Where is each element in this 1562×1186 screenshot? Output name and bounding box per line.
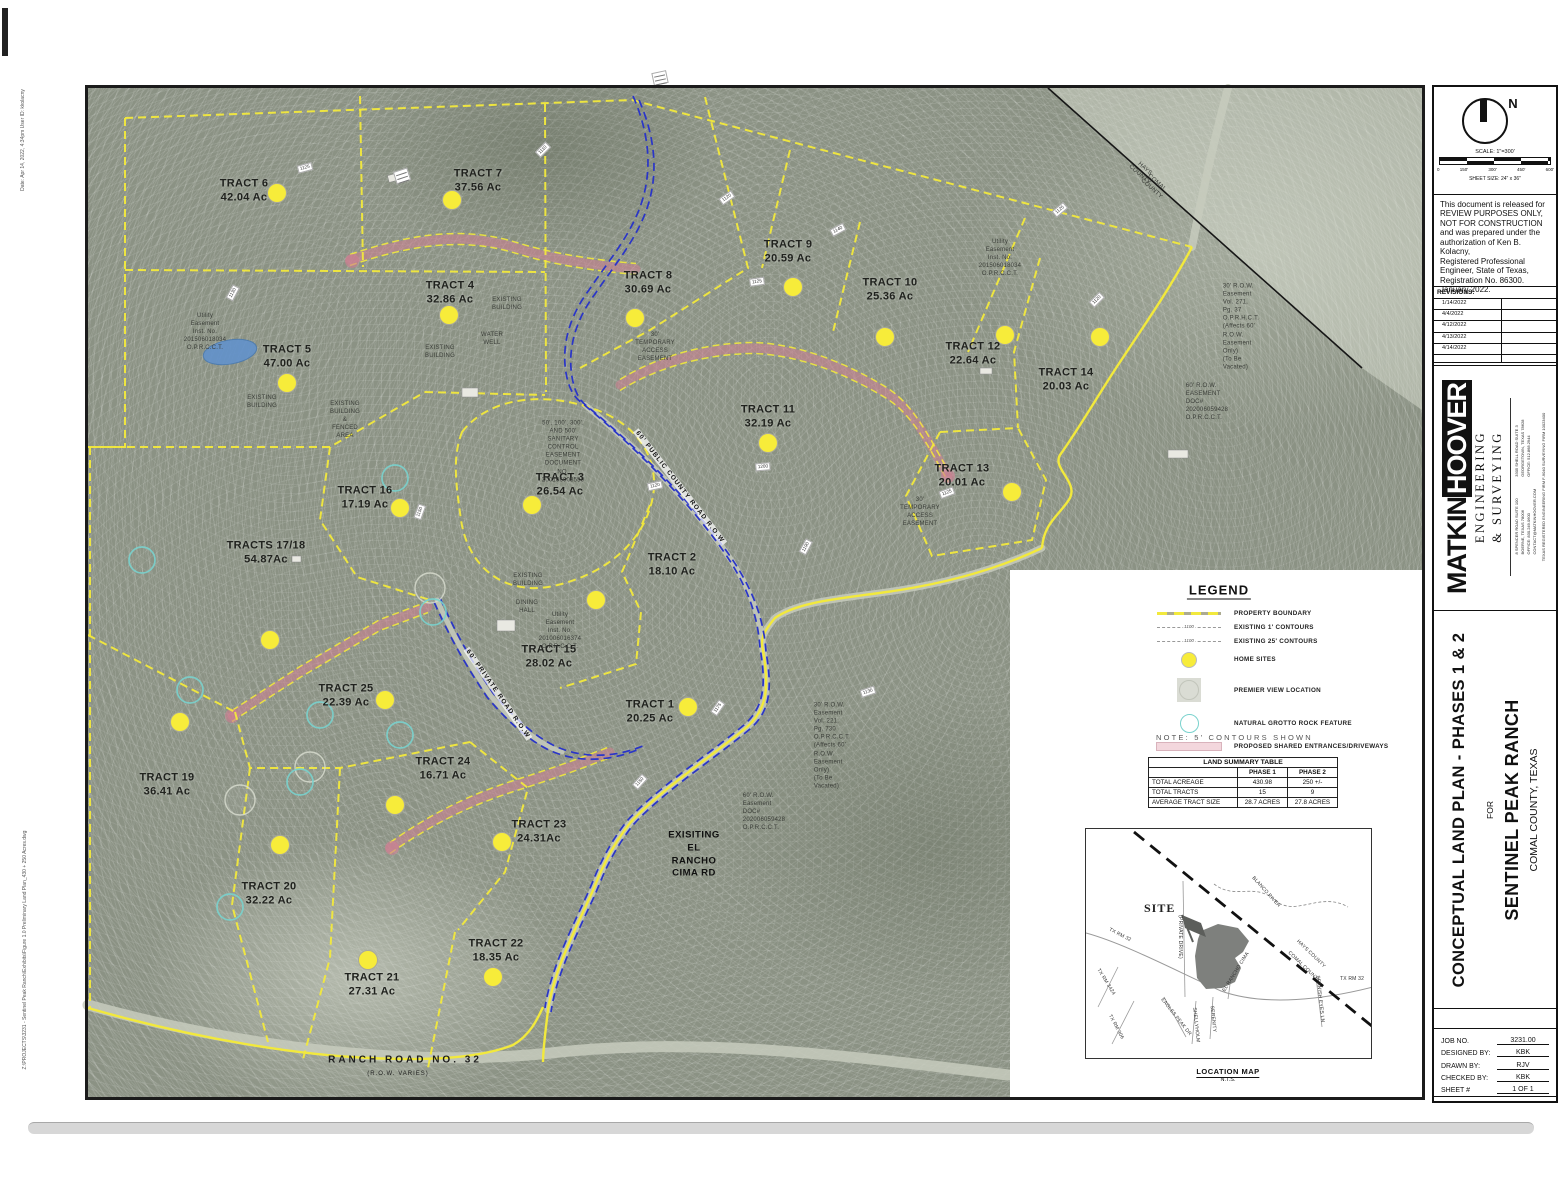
tract-label: TRACT 2032.22 Ac [242, 880, 297, 909]
grotto-circle [129, 547, 155, 573]
premier-view-circle [225, 785, 255, 815]
summary-row: TOTAL TRACTS159 [1149, 788, 1338, 798]
tract-name: TRACT 25 [319, 682, 374, 696]
tract-acreage: 30.69 Ac [624, 283, 673, 297]
job-value: 3231.00 [1497, 1037, 1549, 1045]
summary-value: 27.8 ACRES [1287, 798, 1337, 808]
tract-divider [580, 97, 748, 368]
tract-name: TRACT 13 [935, 462, 990, 476]
tract-name: TRACT 6 [220, 177, 269, 191]
annotation: 60' R.O.W. Easement DOC# 202006059428 O.… [743, 792, 785, 832]
site-label: SITE [1144, 901, 1175, 916]
tract-name: TRACT 24 [416, 755, 471, 769]
premier-swatch-icon [1150, 678, 1228, 702]
tract-name: TRACT 19 [140, 771, 195, 785]
tract-acreage: 18.35 Ac [469, 951, 524, 965]
home-site-dot [268, 184, 287, 203]
contour1-swatch-icon: 1100 [1150, 627, 1228, 628]
home-site-dot [278, 374, 297, 393]
summary-row: TOTAL ACREAGE430.98250 +/- [1149, 778, 1338, 788]
building [462, 388, 478, 397]
revisions-rows: 1/14/20224/4/20224/12/20224/13/20224/14/… [1434, 299, 1556, 366]
contour-elevation-tag: 1100 [1183, 638, 1195, 643]
driveway-blob [345, 254, 359, 268]
tract-acreage: 32.86 Ac [426, 293, 475, 307]
tract-divider [88, 635, 235, 712]
swatch [1180, 714, 1199, 733]
logo-surveying: & SURVEYING [1490, 431, 1505, 543]
job-value: 1 OF 1 [1497, 1086, 1549, 1094]
contour25-swatch-icon: 1100 [1150, 641, 1228, 642]
job-row: DESIGNED BY:KBK [1441, 1045, 1549, 1057]
home-swatch-icon [1150, 652, 1228, 668]
job-label: CHECKED BY: [1441, 1075, 1488, 1082]
summary-value: 15 [1237, 788, 1287, 798]
north-scale-section: N SCALE: 1"=300' 0150'300'450'600' SHEET… [1434, 87, 1556, 195]
home-site-dot [261, 631, 280, 650]
tract-acreage: 16.71 Ac [416, 769, 471, 783]
review-note: This document is released for REVIEW PUR… [1434, 195, 1556, 299]
tract-divider [125, 270, 545, 272]
building [497, 620, 515, 631]
tract-acreage: 20.25 Ac [626, 712, 675, 726]
tract-label: TRACT 1222.64 Ac [946, 340, 1001, 369]
job-label: SHEET # [1441, 1087, 1470, 1094]
date-stamp: Date: Apr 14, 2022, 4:34pm User ID: kkol… [20, 89, 26, 191]
tract-acreage: 32.22 Ac [242, 894, 297, 908]
grotto-circle [217, 894, 243, 920]
company-logo: MATKINHOOVER [1444, 379, 1471, 593]
annotation: RANCH ROAD NO. 32 [328, 1053, 482, 1067]
boundary-top [125, 100, 1192, 247]
tract-label: TRACT 1420.03 Ac [1039, 366, 1094, 395]
revision-date: 1/14/2022 [1442, 300, 1466, 306]
job-row: CHECKED BY:KBK [1441, 1070, 1549, 1082]
annotation: EXISTING BUILDING [492, 296, 522, 312]
sheet-title-for: FOR [1485, 801, 1495, 819]
legend-label: PROPOSED SHARED ENTRANCES/DRIVEWAYS [1234, 743, 1388, 750]
tract-name: TRACT 8 [624, 269, 673, 283]
summary-label: TOTAL ACREAGE [1149, 778, 1238, 788]
logo-firm-line: TEXAS REGISTERED ENGINEERING FIRM F-9040… [1541, 412, 1546, 560]
logo-addresses: 8 SPENCER ROAD SUITE 100 BOERNE, TEXAS 7… [1514, 419, 1538, 554]
legend-label: EXISTING 1' CONTOURS [1234, 624, 1314, 631]
home-site-dot [271, 836, 290, 855]
tract-label: TRACT 2218.35 Ac [469, 937, 524, 966]
tract-name: TRACT 21 [345, 971, 400, 985]
tract-acreage: 18.10 Ac [648, 565, 697, 579]
legend-title: LEGEND [1187, 583, 1251, 600]
grotto-swatch-icon [1150, 714, 1228, 733]
scale-tick: 600' [1546, 167, 1554, 172]
county-line [1134, 832, 1372, 1027]
job-value: KBK [1497, 1074, 1549, 1082]
home-site-dot [391, 499, 410, 518]
sheet-size: SHEET SIZE: 24" x 36" [1469, 176, 1521, 182]
swatch [1157, 612, 1221, 615]
boundary-left [88, 118, 125, 447]
spacer-strip [1434, 1009, 1556, 1029]
legend-note: NOTE: 5' CONTOURS SHOWN [1156, 733, 1313, 742]
tract-divider [360, 96, 363, 267]
grotto-circle [387, 722, 413, 748]
tract-label: TRACT 830.69 Ac [624, 269, 673, 298]
tract-name: TRACT 20 [242, 880, 297, 894]
file-path-stamp: Z:\PROJECTS\3231 - Sentinel Peak Ranch\E… [22, 831, 28, 1070]
tract-label: TRACT 1132.19 Ac [741, 403, 795, 432]
scale-tick: 300' [1488, 167, 1496, 172]
legend-row: HOME SITES [1150, 649, 1408, 670]
summary-value: 430.98 [1237, 778, 1287, 788]
annotation: EXISITING EL RANCHO CIMA RD [668, 829, 719, 880]
summary-value: 28.7 ACRES [1237, 798, 1287, 808]
tract-name: TRACT 9 [764, 238, 813, 252]
tract-label: TRACTS 17/1854.87Ac [227, 539, 306, 568]
plan-sheet: Date: Apr 14, 2022, 4:34pm User ID: kkol… [0, 0, 1562, 1186]
annotation: EXISTING BUILDING [247, 394, 277, 410]
tract-acreage: 54.87Ac [227, 553, 306, 567]
location-map-label: TX RM 32 [1340, 976, 1364, 982]
tract-acreage: 37.56 Ac [454, 181, 503, 195]
tract-label: TRACT 1025.36 Ac [863, 276, 918, 305]
legend-label: NATURAL GROTTO ROCK FEATURE [1234, 720, 1352, 727]
driveway-north [350, 239, 636, 269]
summary-col-phase2: PHASE 2 [1287, 768, 1337, 778]
tract-label: TRACT 2522.39 Ac [319, 682, 374, 711]
annotation: 30' R.O.W. Easement Vol. 271, Pg. 37 O.P… [1223, 282, 1259, 371]
contour-elevation-tag: 1100 [1183, 624, 1195, 629]
logo-divider [1510, 398, 1511, 576]
annotation: WATER WELL [481, 331, 503, 347]
tract-divider [425, 392, 545, 395]
tract-acreage: 25.36 Ac [863, 290, 918, 304]
north-letter: N [1508, 96, 1517, 111]
annotation: (R.O.W. VARIES) [367, 1070, 429, 1078]
annotation: 30' R.O.W. Easement Vol. 221, Pg. 730 O.… [814, 701, 850, 790]
annotation: 60' R.O.W. EASEMENT DOC# 202006059428 O.… [1186, 382, 1228, 422]
revision-date: 4/13/2022 [1442, 334, 1466, 340]
job-table: JOB NO.3231.00DESIGNED BY:KBKDRAWN BY:RJ… [1434, 1029, 1556, 1098]
tract-acreage: 32.19 Ac [741, 417, 795, 431]
el-rancho-band [548, 548, 1042, 1010]
home-site-dot [587, 591, 606, 610]
project-name: SENTINEL PEAK RANCH [1502, 699, 1523, 920]
tract-label: TRACT 120.25 Ac [626, 698, 675, 727]
revision-row: 4/12/2022 [1434, 321, 1556, 332]
review-section: This document is released for REVIEW PUR… [1434, 195, 1556, 287]
tract-acreage: 27.31 Ac [345, 985, 400, 999]
tract-name: TRACT 11 [741, 403, 795, 417]
swatch [1177, 678, 1201, 702]
home-site-dots [171, 184, 1110, 987]
revision-date: 4/4/2022 [1442, 311, 1463, 317]
building [1168, 450, 1188, 458]
tract-name: TRACT 12 [946, 340, 1001, 354]
legend-label: EXISTING 25' CONTOURS [1234, 638, 1318, 645]
tract-label: TRACT 1936.41 Ac [140, 771, 195, 800]
tract-name: TRACT 23 [512, 818, 567, 832]
home-site-dot [1003, 483, 1022, 502]
tract-acreage: 22.39 Ac [319, 696, 374, 710]
logo-section: MATKINHOOVER ENGINEERING & SURVEYING 8 S… [1434, 363, 1556, 611]
tract-divider [320, 447, 430, 600]
revision-row: 4/4/2022 [1434, 310, 1556, 321]
scale-bar [1439, 157, 1551, 165]
legend-row: PROPERTY BOUNDARY [1150, 606, 1408, 620]
job-value: KBK [1497, 1049, 1549, 1057]
legend-row: PREMIER VIEW LOCATION [1150, 670, 1408, 710]
job-value: RJV [1497, 1062, 1549, 1070]
annotation: 50', 100', 300', AND 500' SANITARY CONTR… [542, 420, 584, 485]
annotation: DINING HALL [516, 599, 538, 615]
annotation: EXISTING BUILDING [425, 344, 455, 360]
annotation: 30' TEMPORARY ACCESS EASEMENT [900, 496, 940, 528]
home-site-dot [626, 309, 645, 328]
swatch [1181, 652, 1197, 668]
revisions-section: REVISIONS: 1/14/20224/4/20224/12/20224/1… [1434, 287, 1556, 363]
elevation-tag: 1200 [755, 462, 771, 472]
boundary-solid-ne [1042, 247, 1192, 548]
summary-value: 250 +/- [1287, 778, 1337, 788]
summary-row: AVERAGE TRACT SIZE28.7 ACRES27.8 ACRES [1149, 798, 1338, 808]
scale-tick: 150' [1460, 167, 1468, 172]
grotto-circles [129, 465, 446, 920]
sheet-title: CONCEPTUAL LAND PLAN - PHASES 1 & 2 [1450, 632, 1469, 987]
tract-label: TRACT 642.04 Ac [220, 177, 269, 206]
revision-row: 4/14/2022 [1434, 344, 1556, 355]
scale-ticks: 0150'300'450'600' [1437, 167, 1554, 172]
job-row: SHEET #1 OF 1 [1441, 1082, 1549, 1094]
tract-divider [833, 222, 860, 332]
tract-name: TRACT 14 [1039, 366, 1094, 380]
north-arrow-bar [1480, 100, 1487, 122]
titleblock: N SCALE: 1"=300' 0150'300'450'600' SHEET… [1432, 85, 1558, 1103]
tract-name: TRACT 5 [263, 343, 312, 357]
job-label: DRAWN BY: [1441, 1063, 1480, 1070]
tract-acreage: 17.19 Ac [338, 498, 393, 512]
tract-acreage: 20.01 Ac [935, 476, 990, 490]
home-site-dot [359, 951, 378, 970]
scale-tick: 450' [1517, 167, 1525, 172]
job-row: JOB NO.3231.00 [1441, 1033, 1549, 1045]
location-map-caption: LOCATION MAP [1196, 1067, 1259, 1078]
legend-label: HOME SITES [1234, 656, 1276, 663]
grotto-circle [177, 677, 203, 703]
tract-name: TRACTS 17/18 [227, 539, 306, 553]
boundary-solid-east [543, 548, 1042, 1062]
legend-label: PREMIER VIEW LOCATION [1234, 687, 1321, 694]
tract-acreage: 22.64 Ac [946, 354, 1001, 368]
logo-engineering: ENGINEERING [1473, 430, 1488, 542]
tract-acreage: 28.02 Ac [522, 657, 577, 671]
home-site-dot [1091, 328, 1110, 347]
location-map: SITE TX RM 32TX RM 3424TX RM 306(PRIVATE… [1085, 828, 1372, 1059]
tract-acreage: 42.04 Ac [220, 191, 269, 205]
land-summary-table: LAND SUMMARY TABLE PHASE 1 PHASE 2 TOTAL… [1148, 757, 1338, 808]
home-site-dot [171, 713, 190, 732]
job-label: DESIGNED BY: [1441, 1050, 1490, 1057]
logo-matkin: MATKIN [1442, 497, 1472, 594]
tract-label: TRACT 737.56 Ac [454, 167, 503, 196]
tract-acreage: 26.54 Ac [536, 485, 585, 499]
swatch-dash [1157, 612, 1221, 615]
building [980, 368, 992, 374]
tract-divider [302, 768, 340, 1063]
annotation: Utility Easement Inst. No. 201506018034 … [979, 238, 1021, 278]
annotation: Utility Easement Inst. No. 201006016374 … [539, 611, 581, 651]
sheet-title-section: CONCEPTUAL LAND PLAN - PHASES 1 & 2 FOR … [1434, 611, 1556, 1009]
swatch: 1100 [1157, 627, 1221, 628]
tract-acreage: 20.59 Ac [764, 252, 813, 266]
tract-label: TRACT 2127.31 Ac [345, 971, 400, 1000]
tract-name: TRACT 10 [863, 276, 918, 290]
tract-label: TRACT 432.86 Ac [426, 279, 475, 308]
revisions-label: REVISIONS: [1434, 287, 1556, 299]
project-location: COMAL COUNTY, TEXAS [1528, 748, 1540, 871]
swatch [1156, 742, 1222, 751]
annotation: Utility Easement Inst. No. 201506018034 … [184, 312, 226, 352]
driveway-blob [385, 841, 399, 855]
scale-label: SCALE: 1"=300' [1475, 149, 1515, 155]
tract-label: TRACT 1617.19 Ac [338, 484, 393, 513]
boundary-swatch-icon [1150, 612, 1228, 615]
location-map-scale: N.T.S. [1221, 1077, 1236, 1083]
annotation: EXISTING BUILDING [513, 572, 543, 588]
tract-label: TRACT 547.00 Ac [263, 343, 312, 372]
home-site-dot [493, 833, 512, 852]
scale-tick: 0 [1437, 167, 1440, 172]
tract-acreage: 36.41 Ac [140, 785, 195, 799]
legend-row: 1100EXISTING 25' CONTOURS [1150, 634, 1408, 649]
summary-label: TOTAL TRACTS [1149, 788, 1238, 798]
annotation: EXISTING BUILDING & FENCED AREA [330, 400, 360, 440]
home-site-dot [376, 691, 395, 710]
home-site-dot [759, 434, 778, 453]
swatch-circle [1179, 680, 1199, 700]
tract-acreage: 20.03 Ac [1039, 380, 1094, 394]
summary-label: AVERAGE TRACT SIZE [1149, 798, 1238, 808]
revision-row: 1/14/2022 [1434, 299, 1556, 310]
location-map-svg [1086, 829, 1372, 1059]
summary-col-blank [1149, 768, 1238, 778]
logo-address-boerne: 8 SPENCER ROAD SUITE 100 BOERNE, TEXAS 7… [1514, 488, 1538, 554]
job-section: JOB NO.3231.00DESIGNED BY:KBKDRAWN BY:RJ… [1434, 1029, 1556, 1097]
corner-mark [2, 8, 8, 56]
revision-date: 4/14/2022 [1442, 345, 1466, 351]
home-site-dot [784, 278, 803, 297]
home-site-dot [484, 968, 503, 987]
tract-label: TRACT 2416.71 Ac [416, 755, 471, 784]
tract-divider [428, 932, 455, 1068]
tract-label: TRACT 218.10 Ac [648, 551, 697, 580]
summary-col-phase1: PHASE 1 [1237, 768, 1287, 778]
tract-acreage: 24.31Ac [512, 832, 567, 846]
home-site-dot [440, 306, 459, 325]
summary-title: LAND SUMMARY TABLE [1149, 758, 1338, 768]
swatch: 1100 [1157, 641, 1221, 642]
private-drive-road [1183, 881, 1185, 997]
logo-hoover: HOOVER [1442, 379, 1472, 496]
tract-divider [1014, 258, 1040, 428]
summary-value: 9 [1287, 788, 1337, 798]
home-site-dot [386, 796, 405, 815]
revisions-divider [1501, 299, 1502, 362]
home-site-dot [876, 328, 895, 347]
home-site-dot [679, 698, 698, 717]
job-row: DRAWN BY:RJV [1441, 1057, 1549, 1069]
county-road-se-band [585, 405, 763, 650]
legend-label: PROPERTY BOUNDARY [1234, 610, 1312, 617]
location-map-label: (PRIVATE DRIVE) [1177, 915, 1183, 959]
revision-date: 4/12/2022 [1442, 322, 1466, 328]
job-label: JOB NO. [1441, 1038, 1469, 1045]
legend-row: 1100EXISTING 1' CONTOURS [1150, 620, 1408, 634]
tract-name: TRACT 7 [454, 167, 503, 181]
annotation: 30' TEMPORARY ACCESS EASEMENT [635, 331, 675, 363]
premier-view-circle [295, 752, 325, 782]
tract-label: TRACT 920.59 Ac [764, 238, 813, 267]
logo-address-georgetown: 3305 SHELL ROAD SUITE 3 GEORGETOWN, TEXA… [1514, 419, 1538, 476]
horizontal-scrollbar[interactable] [28, 1122, 1534, 1134]
driveway-swatch-icon [1150, 742, 1228, 751]
tract-name: TRACT 2 [648, 551, 697, 565]
tract-acreage: 47.00 Ac [263, 357, 312, 371]
revision-row: 4/13/2022 [1434, 333, 1556, 344]
tract-label: TRACT 1320.01 Ac [935, 462, 990, 491]
tract-name: TRACT 16 [338, 484, 393, 498]
tract-name: TRACT 4 [426, 279, 475, 293]
tract-label: TRACT 2324.31Ac [512, 818, 567, 847]
tract-name: TRACT 1 [626, 698, 675, 712]
tract-name: TRACT 22 [469, 937, 524, 951]
